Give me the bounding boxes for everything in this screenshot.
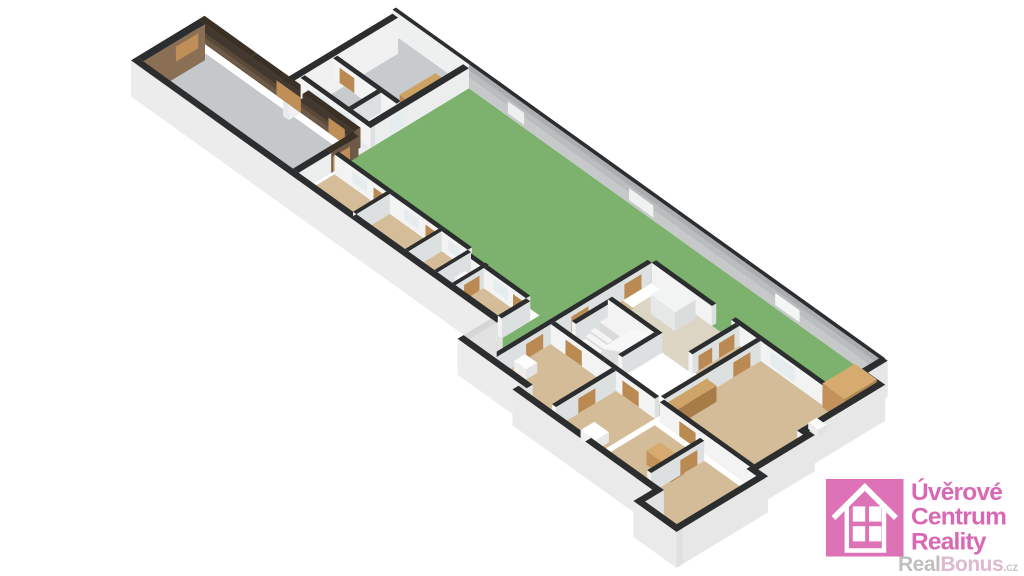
- svg-text:Úvěrové: Úvěrové: [911, 478, 1002, 506]
- svg-text:Reality: Reality: [911, 528, 987, 555]
- svg-text:Centrum: Centrum: [911, 504, 1006, 531]
- svg-text:RealBonus.cz: RealBonus.cz: [898, 553, 1018, 576]
